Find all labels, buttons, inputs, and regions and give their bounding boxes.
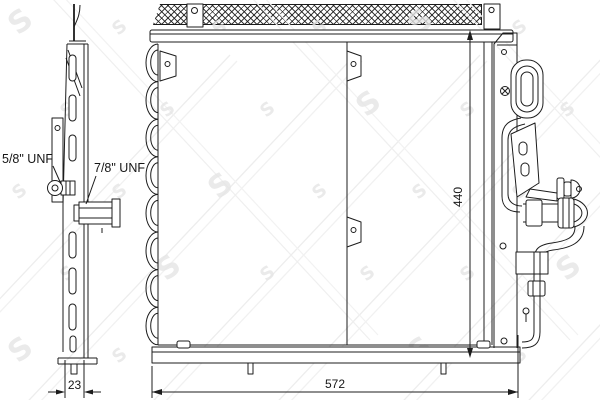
svg-text:S: S <box>256 97 279 122</box>
right-piping-view <box>494 33 587 348</box>
svg-text:S: S <box>349 83 388 124</box>
svg-text:S: S <box>108 15 131 40</box>
service-valve <box>557 178 582 199</box>
dim-width-label: 572 <box>325 377 345 391</box>
bottom-clip-left <box>177 341 190 348</box>
svg-text:S: S <box>308 179 331 204</box>
svg-text:S: S <box>149 247 188 288</box>
bottom-peg-right <box>441 363 446 374</box>
pipe-block <box>516 252 548 274</box>
svg-text:S: S <box>201 165 240 206</box>
bottom-bar <box>152 347 520 363</box>
left-fin-scallops <box>146 44 158 345</box>
svg-text:S: S <box>456 261 479 286</box>
svg-text:S: S <box>456 97 479 122</box>
top-header-bar <box>150 30 513 42</box>
svg-text:S: S <box>8 179 31 204</box>
svg-text:S: S <box>256 261 279 286</box>
side-slots <box>69 55 76 352</box>
svg-text:S: S <box>356 261 379 286</box>
side-foot-peg <box>71 364 77 374</box>
svg-text:S: S <box>408 179 431 204</box>
thread-label-7-8: 7/8" UNF <box>94 161 145 175</box>
right-tank-edge <box>484 42 492 345</box>
svg-text:S: S <box>1 329 40 370</box>
pipe-coil <box>511 60 543 118</box>
bottom-peg-left <box>248 363 253 374</box>
thread-label-5-8: 5/8" UNF <box>2 152 53 166</box>
bottom-clip-right <box>477 341 490 348</box>
pipe-coupling <box>528 281 545 296</box>
capped-fitting <box>523 198 587 228</box>
svg-text:S: S <box>1 1 40 42</box>
fitting-5-8-unf <box>48 181 76 196</box>
condenser-technical-drawing: SSSSSSSSSSSSSSSSSSSSSSSSSSSSSS <box>0 0 600 400</box>
svg-text:S: S <box>108 343 131 368</box>
dim-height-label: 440 <box>451 187 465 207</box>
diagram-linework: SSSSSSSSSSSSSSSSSSSSSSSSSSSSSS <box>0 0 600 400</box>
dimension-height-440: 440 <box>451 30 473 358</box>
fitting-7-8-unf <box>74 199 120 233</box>
dim-depth-label: 23 <box>68 378 82 392</box>
